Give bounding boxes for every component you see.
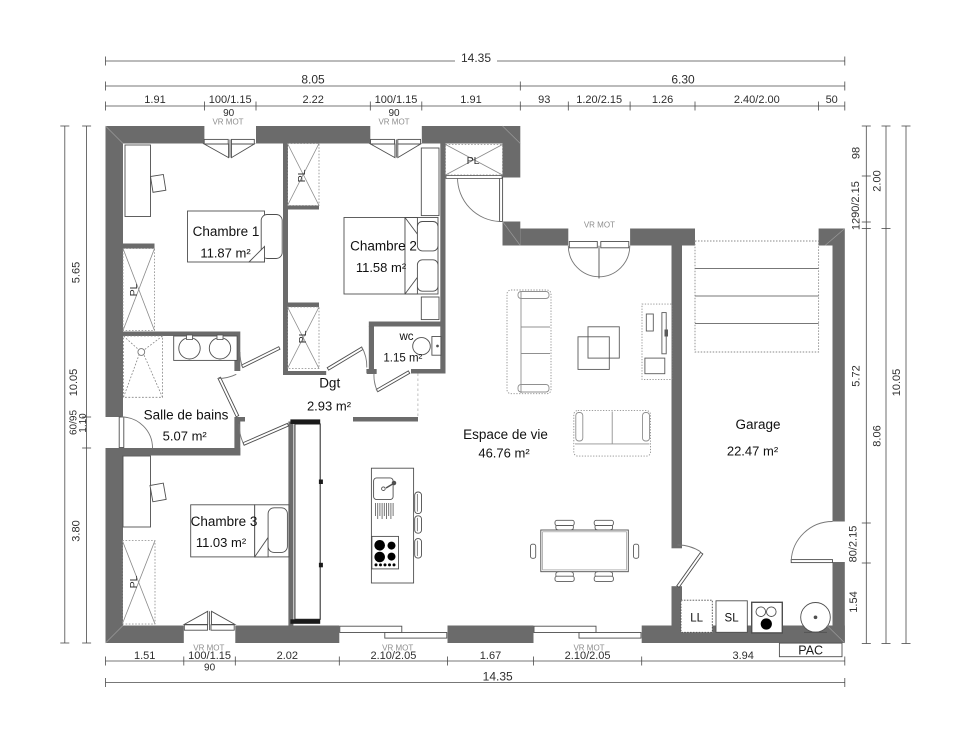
svg-text:93: 93 [538,94,550,106]
svg-text:VR MOT: VR MOT [193,644,224,653]
svg-text:Chambre 3: Chambre 3 [191,514,258,529]
svg-text:Salle de bains: Salle de bains [144,408,229,423]
svg-text:3.94: 3.94 [732,650,753,662]
svg-text:1.91: 1.91 [144,94,165,106]
svg-text:10.05: 10.05 [891,369,903,397]
svg-text:2.40/2.00: 2.40/2.00 [734,94,780,106]
svg-text:1.91: 1.91 [460,94,481,106]
svg-text:1.10: 1.10 [78,413,89,433]
svg-text:100/1.15: 100/1.15 [209,94,252,106]
svg-text:Dgt: Dgt [319,376,340,391]
svg-text:PAC: PAC [798,643,823,657]
svg-text:1.20/2.15: 1.20/2.15 [576,94,622,106]
svg-text:VR MOT: VR MOT [573,644,604,653]
svg-text:98: 98 [851,147,863,159]
svg-text:90/2.15: 90/2.15 [850,181,862,218]
svg-text:SL: SL [725,613,740,625]
svg-text:VR MOT: VR MOT [382,644,413,653]
svg-text:46.76 m²: 46.76 m² [478,446,530,461]
svg-text:PL: PL [128,575,140,588]
svg-text:8.06: 8.06 [872,425,884,446]
svg-text:1.15 m²: 1.15 m² [383,353,422,365]
svg-text:22.47 m²: 22.47 m² [727,444,779,459]
svg-text:11.03 m²: 11.03 m² [196,535,247,550]
svg-text:2.22: 2.22 [302,94,323,106]
svg-text:10.05: 10.05 [68,369,80,397]
svg-text:VR MOT: VR MOT [212,118,243,127]
svg-text:5.65: 5.65 [71,262,83,283]
svg-text:PL: PL [296,169,308,182]
svg-text:11.87 m²: 11.87 m² [200,246,251,261]
svg-text:VR MOT: VR MOT [584,221,615,230]
svg-text:2.00: 2.00 [872,170,884,191]
svg-text:6.30: 6.30 [671,73,695,87]
svg-text:Espace de vie: Espace de vie [463,427,548,442]
svg-text:2.93 m²: 2.93 m² [307,399,352,414]
svg-text:LL: LL [690,613,703,625]
svg-text:PL: PL [297,330,309,343]
svg-text:5.07 m²: 5.07 m² [163,429,208,444]
svg-text:PL: PL [467,155,480,167]
svg-text:Chambre 1: Chambre 1 [193,224,260,239]
svg-text:80/2.15: 80/2.15 [848,526,860,563]
svg-text:1.54: 1.54 [848,591,860,612]
svg-text:100/1.15: 100/1.15 [375,94,418,106]
svg-text:1.26: 1.26 [652,94,673,106]
svg-text:1.67: 1.67 [480,650,501,662]
svg-text:14.35: 14.35 [483,670,513,684]
svg-text:wc: wc [398,331,413,343]
svg-text:3.80: 3.80 [71,520,83,541]
svg-text:PL: PL [128,283,140,296]
svg-text:8.05: 8.05 [301,73,325,87]
svg-text:2.02: 2.02 [277,650,298,662]
svg-text:VR MOT: VR MOT [378,118,409,127]
svg-text:Chambre 2: Chambre 2 [350,239,417,254]
svg-text:90: 90 [204,663,216,674]
svg-text:Garage: Garage [735,417,780,432]
svg-text:1.51: 1.51 [134,650,155,662]
svg-text:5.72: 5.72 [851,365,863,386]
svg-text:11.58 m²: 11.58 m² [356,260,407,275]
svg-text:50: 50 [826,94,838,106]
svg-text:14.35: 14.35 [461,51,491,65]
svg-text:12: 12 [851,218,863,230]
